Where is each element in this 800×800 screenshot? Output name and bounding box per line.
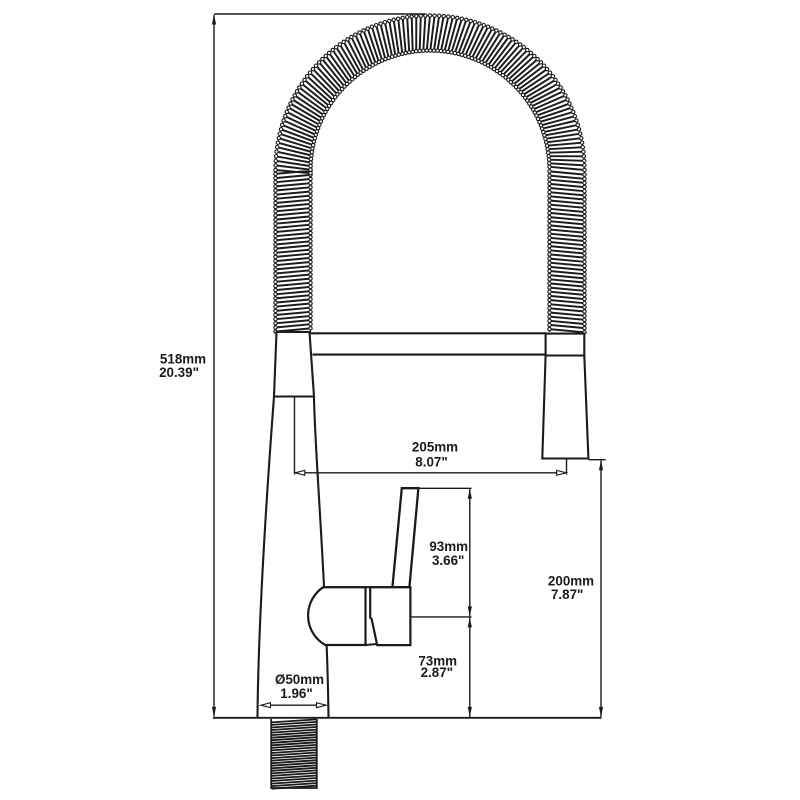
svg-text:Ø50mm: Ø50mm <box>275 672 324 687</box>
svg-text:2.87": 2.87" <box>421 665 453 680</box>
svg-text:7.87": 7.87" <box>551 587 583 602</box>
svg-text:20.39": 20.39" <box>159 365 199 380</box>
svg-text:8.07": 8.07" <box>415 455 447 470</box>
svg-text:93mm: 93mm <box>429 539 468 554</box>
svg-text:1.96": 1.96" <box>280 686 312 701</box>
svg-text:205mm: 205mm <box>412 440 458 455</box>
svg-text:3.66": 3.66" <box>432 553 464 568</box>
